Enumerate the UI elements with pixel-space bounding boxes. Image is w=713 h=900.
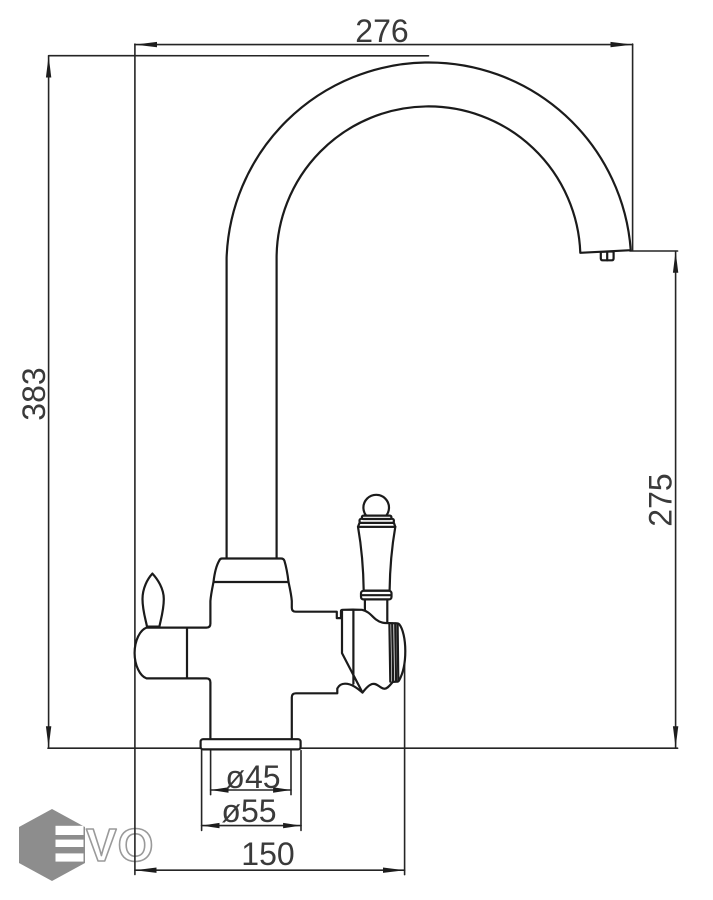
svg-text:ø55: ø55: [221, 793, 276, 829]
svg-text:276: 276: [355, 13, 408, 49]
svg-text:383: 383: [16, 367, 52, 420]
svg-text:275: 275: [643, 473, 679, 526]
svg-text:ø45: ø45: [225, 759, 280, 795]
svg-text:VO: VO: [86, 819, 154, 871]
svg-text:150: 150: [241, 836, 294, 872]
